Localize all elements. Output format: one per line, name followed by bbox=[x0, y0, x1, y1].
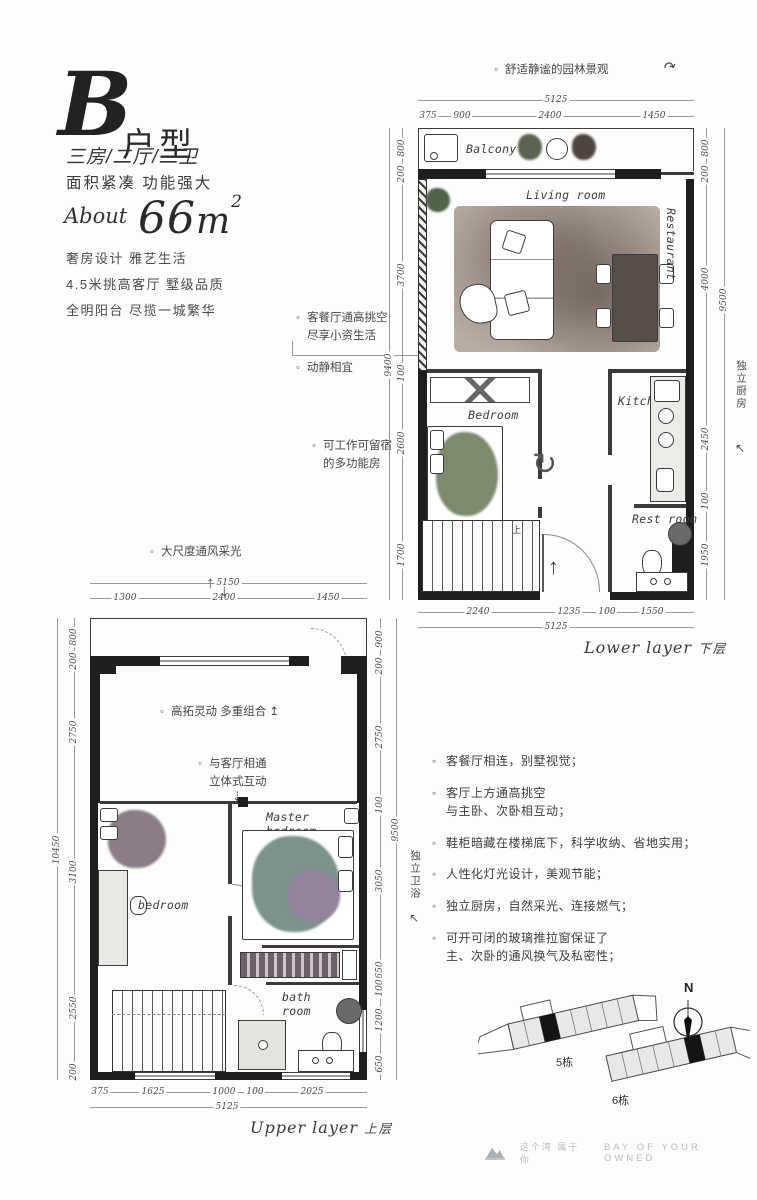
faucet bbox=[664, 578, 671, 585]
kitchen-appliance bbox=[654, 380, 680, 402]
area-superscript: 2 bbox=[231, 192, 243, 212]
footer-slogan-en: BAY OF YOUR OWNED bbox=[604, 1142, 757, 1164]
wall bbox=[357, 666, 367, 803]
wall bbox=[418, 371, 427, 518]
dim-label: 2240 bbox=[465, 607, 492, 617]
dim-label: 5125 bbox=[543, 622, 570, 632]
dim-label: 2600 bbox=[397, 430, 407, 457]
floorplan-page: B 户型 三房/二厅/二卫 面积紧凑 功能强大 About 66m2 奢房设计 … bbox=[0, 0, 757, 1200]
room-label-bedroom: Bedroom bbox=[468, 408, 519, 422]
unit-tagline: 面积紧凑 功能强大 bbox=[66, 171, 212, 193]
about-label: About bbox=[64, 204, 127, 228]
dining-chair bbox=[596, 308, 611, 328]
room-label-balcony: Balcony bbox=[466, 142, 517, 156]
note-multifunction-room: 可工作可留宿 的多功能房 bbox=[312, 438, 392, 474]
dim-label: 1450 bbox=[315, 593, 342, 603]
wall bbox=[228, 916, 232, 985]
dim-label: 200 bbox=[701, 163, 711, 184]
lower-layer-caption: Lower layer 下层 bbox=[584, 638, 727, 657]
caption-en: Upper layer bbox=[250, 1118, 358, 1137]
balcony-plant bbox=[572, 134, 596, 160]
dim-label: 800 bbox=[701, 137, 711, 158]
dim-label: 1200 bbox=[375, 1007, 385, 1034]
lower-floor-plan: 舒适静谧的园林景观 ↷ 5125 375 900 2400 1450 800 2… bbox=[386, 60, 757, 685]
garden-view-note: 舒适静谧的园林景观 bbox=[494, 62, 609, 80]
desk bbox=[98, 870, 128, 966]
entry-arrow-icon: ↑ bbox=[548, 556, 559, 578]
wall bbox=[634, 504, 686, 508]
wall bbox=[228, 804, 232, 884]
kitchen-sink bbox=[656, 468, 674, 492]
dim-label: 900 bbox=[451, 111, 472, 121]
feature-item: 独立厨房，自然采光、连接燃气； bbox=[432, 897, 754, 916]
dim-label: 2750 bbox=[69, 719, 79, 746]
ac-unit bbox=[424, 134, 458, 162]
pillow bbox=[100, 808, 118, 822]
dim-label: 9500 bbox=[391, 817, 401, 844]
dim-label: 100 bbox=[375, 977, 385, 998]
void-note-interaction: 与客厅相通 立体式互动 bbox=[198, 756, 267, 792]
vent-down-arrow-icon: ↓ bbox=[220, 582, 229, 599]
dim-label: 650 bbox=[375, 1053, 385, 1074]
caption-cn: 下层 bbox=[698, 641, 727, 656]
pillow bbox=[100, 826, 118, 840]
stairs-landing bbox=[112, 1014, 226, 1015]
dim-label: 4000 bbox=[701, 266, 711, 293]
corner-arrow-icon: ↖ bbox=[735, 442, 745, 454]
stairs bbox=[112, 990, 226, 1072]
wall bbox=[418, 179, 427, 371]
room-label-living: Living room bbox=[526, 188, 605, 202]
note-quiet-zones: 动静相宜 bbox=[296, 360, 353, 378]
footer-brand: 这个湾 属于你 BAY OF YOUR OWNED bbox=[484, 1140, 757, 1166]
void-note-flex: 高拓灵动 多重组合 ↥ bbox=[160, 704, 279, 722]
room-label-bath: bath room bbox=[282, 990, 311, 1019]
wardrobe bbox=[240, 952, 340, 978]
faucet bbox=[650, 578, 657, 585]
curve-arrow-icon: ↷ bbox=[662, 58, 679, 76]
pillow bbox=[338, 870, 353, 892]
feature-item: 人性化灯光设计，美观节能； bbox=[432, 865, 754, 884]
wall bbox=[90, 666, 100, 803]
north-label: N bbox=[684, 980, 693, 995]
feature-item: 客餐厅相连，别墅视觉； bbox=[432, 752, 754, 771]
dim-label: 3100 bbox=[69, 859, 79, 886]
window bbox=[135, 1072, 215, 1080]
bath-side-note: 独立卫浴 bbox=[408, 850, 423, 900]
feature-list: 客餐厅相连，别墅视觉； 客厅上方通高挑空 与主卧、次卧相互动； 鞋柜暗藏在楼梯底… bbox=[432, 752, 754, 966]
site-map: 5栋 6栋 N bbox=[478, 980, 750, 1112]
dim-line bbox=[706, 128, 707, 600]
nightstand bbox=[344, 808, 359, 824]
ac-fan bbox=[430, 152, 438, 160]
lift-arrow-icon: ↥ bbox=[269, 706, 279, 718]
footer-slogan-cn: 这个湾 属于你 bbox=[520, 1140, 590, 1166]
dim-label: 9400 bbox=[384, 352, 394, 379]
dining-table bbox=[612, 254, 658, 342]
upper-floor-plan: 大尺度通风采光 5150 1300 2400 1450 800 200 2750… bbox=[20, 540, 440, 1160]
pillow bbox=[430, 454, 444, 474]
dim-label: 900 bbox=[375, 628, 385, 649]
unit-spec: 三房/二厅/二卫 bbox=[66, 142, 199, 169]
shelf bbox=[342, 950, 357, 980]
dim-label: 1235 bbox=[556, 607, 583, 617]
wall bbox=[90, 803, 98, 1072]
master-bed-throw bbox=[288, 870, 340, 922]
pillow bbox=[338, 836, 353, 858]
dim-label: 5125 bbox=[543, 95, 570, 105]
dim-label: 9500 bbox=[719, 287, 729, 314]
dim-label: 800 bbox=[397, 137, 407, 158]
dim-label: 800 bbox=[69, 626, 79, 647]
wall bbox=[238, 797, 248, 807]
wall bbox=[615, 169, 661, 179]
wall bbox=[608, 485, 612, 592]
wall bbox=[608, 369, 612, 455]
void-note-flex-text: 高拓灵动 多重组合 bbox=[171, 706, 266, 718]
unit-description: 奢房设计 雅艺生活 4.5米挑高客厅 墅级品质 全明阳台 尽揽一城繁华 bbox=[66, 246, 224, 324]
dim-line bbox=[724, 128, 725, 600]
bedroom-closet bbox=[430, 377, 530, 403]
corner-arrow-icon: ↖ bbox=[409, 912, 419, 924]
area-number: 66 bbox=[138, 193, 196, 244]
dim-label: 3700 bbox=[397, 262, 407, 289]
area-value: 66m2 bbox=[138, 192, 243, 244]
feature-item: 客厅上方通高挑空 与主卧、次卧相互动； bbox=[432, 784, 754, 821]
wall bbox=[610, 592, 694, 600]
stairs-up-label: 上 bbox=[512, 526, 521, 535]
faucet bbox=[326, 1057, 333, 1064]
feature-item: 可开可闭的玻璃推拉窗保证了 主、次卧的通风换气及私密性； bbox=[432, 929, 754, 966]
dim-label: 1625 bbox=[140, 1087, 167, 1097]
window bbox=[160, 656, 289, 666]
feature-item: 鞋柜暗藏在楼梯底下，科学收纳、省地实用； bbox=[432, 834, 754, 853]
dim-label: 1000 bbox=[211, 1087, 238, 1097]
wall bbox=[610, 369, 686, 373]
dim-label: 375 bbox=[417, 111, 438, 121]
dim-label: 100 bbox=[701, 490, 711, 511]
dim-label: 3050 bbox=[375, 868, 385, 895]
note-double-height: 客餐厅通高挑空 尽享小资生活 bbox=[296, 310, 388, 346]
dim-label: 200 bbox=[69, 1061, 79, 1082]
dim-label: 200 bbox=[69, 650, 79, 671]
dim-label: 1300 bbox=[112, 593, 139, 603]
wall bbox=[538, 507, 542, 518]
light-vent-note: 大尺度通风采光 bbox=[150, 544, 242, 562]
dim-label: 100 bbox=[596, 607, 617, 617]
window bbox=[282, 1072, 350, 1080]
faucet bbox=[312, 1057, 319, 1064]
room-label-restaurant: Restaurant bbox=[664, 208, 678, 280]
dim-label: 2750 bbox=[375, 724, 385, 751]
balcony-table bbox=[546, 138, 568, 160]
dim-line bbox=[396, 618, 397, 1080]
dim-label: 1550 bbox=[639, 607, 666, 617]
wall bbox=[661, 172, 694, 175]
wall bbox=[427, 369, 540, 373]
pillow bbox=[430, 430, 444, 450]
washbasin bbox=[668, 522, 692, 546]
upper-layer-caption: Upper layer 上层 bbox=[250, 1118, 393, 1137]
shower-drain bbox=[258, 1040, 268, 1050]
balcony-plant bbox=[518, 134, 542, 160]
dining-chair bbox=[596, 264, 611, 284]
wall bbox=[266, 982, 359, 985]
stove-burner bbox=[658, 432, 674, 448]
room-label-bedroom2: bedroom bbox=[138, 898, 189, 912]
dim-label: 200 bbox=[397, 163, 407, 184]
window bbox=[486, 169, 615, 179]
dim-label: 1450 bbox=[641, 111, 668, 121]
wall bbox=[418, 169, 486, 179]
building-5-label: 5栋 bbox=[556, 1055, 573, 1069]
leader-line bbox=[292, 341, 293, 355]
washbasin bbox=[336, 998, 362, 1024]
plant bbox=[426, 188, 450, 212]
dim-label: 100 bbox=[397, 362, 407, 383]
footer-logo-icon bbox=[484, 1145, 506, 1161]
bed-blanket bbox=[436, 432, 498, 516]
dim-label: 5125 bbox=[214, 1102, 241, 1112]
rotate-arrow-icon: ↻ bbox=[532, 450, 557, 480]
dim-label: 375 bbox=[89, 1087, 110, 1097]
dim-label: 1950 bbox=[701, 542, 711, 569]
dim-label: 2400 bbox=[537, 111, 564, 121]
dim-label: 100 bbox=[375, 794, 385, 815]
dim-label: 10450 bbox=[52, 834, 62, 867]
dim-label: 100 bbox=[244, 1087, 265, 1097]
dim-label: 200 bbox=[375, 655, 385, 676]
area-unit: m bbox=[196, 201, 231, 242]
bath-counter bbox=[636, 572, 688, 592]
wall bbox=[289, 656, 309, 666]
wall bbox=[262, 945, 359, 948]
vent-up-arrow-icon: ↑ bbox=[206, 574, 215, 591]
dim-label: 2550 bbox=[69, 995, 79, 1022]
door-swing bbox=[234, 985, 264, 1015]
stove-burner bbox=[658, 408, 674, 424]
dining-chair bbox=[659, 308, 674, 328]
kitchen-side-note: 独立厨房 bbox=[734, 360, 749, 410]
caption-cn: 上层 bbox=[364, 1121, 393, 1136]
dim-label: 2450 bbox=[701, 426, 711, 453]
caption-en: Lower layer bbox=[584, 638, 692, 657]
building-6-label: 6栋 bbox=[612, 1093, 629, 1107]
dim-label: 2025 bbox=[299, 1087, 326, 1097]
